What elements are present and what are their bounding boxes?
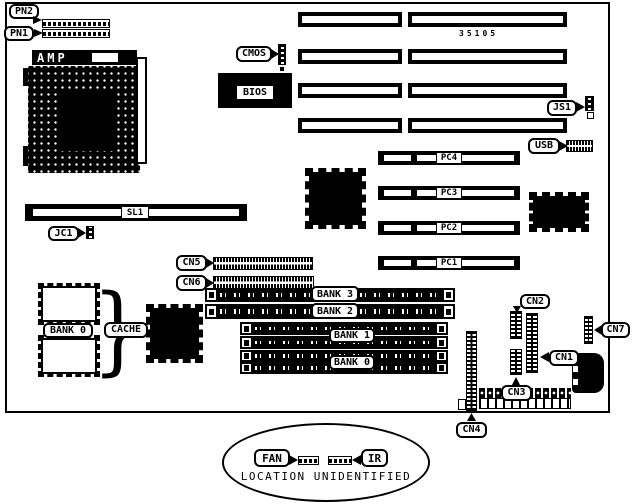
location-unidentified-ellipse: [222, 423, 430, 502]
cn4-header: [466, 331, 477, 411]
simm-latch-icon: [206, 305, 217, 318]
slot-stripe: [462, 225, 514, 231]
bios-chip-label: BIOS: [237, 86, 273, 99]
isa-slot-2-left: [298, 49, 402, 64]
js1-jumper: [585, 96, 594, 111]
board-id-text: 35105: [459, 29, 498, 38]
isa-slot-3-right: [408, 83, 567, 98]
cn4-pad: [458, 399, 466, 410]
pci-slot-pc2: PC2: [378, 221, 520, 235]
cpu-socket-header: AMP: [32, 50, 137, 65]
simm-latch-icon: [436, 337, 447, 348]
slot-stripe: [384, 260, 411, 266]
fan-label: FAN: [254, 449, 290, 467]
ir-header: [328, 456, 352, 465]
slot-stripe: [384, 190, 411, 196]
slot-stripe: [462, 155, 514, 161]
ir-label: IR: [361, 449, 388, 467]
isa-slot-2-right: [408, 49, 567, 64]
slot-stripe: [417, 225, 436, 231]
bank2-label: BANK 2: [311, 303, 359, 319]
pci-slot-pc1-label: PC1: [436, 257, 462, 269]
isa-slot-4-right: [408, 118, 567, 133]
simm-latch-icon: [206, 289, 217, 301]
cn5-header: [213, 257, 313, 270]
slot-stripe: [462, 190, 514, 196]
pn1-label: PN1: [4, 26, 34, 41]
cn1-label: CN1: [549, 350, 579, 366]
cmos-pad: [280, 67, 284, 71]
isa-slot-4-left: [298, 118, 402, 133]
location-unidentified-text: LOCATION UNIDENTIFIED: [234, 470, 418, 483]
jc1-jumper: [86, 226, 94, 239]
bios-chip: BIOS: [218, 73, 292, 108]
cn7-header: [584, 316, 593, 344]
cn7-label: CN7: [601, 322, 630, 338]
simm-latch-icon: [241, 337, 252, 348]
pci-slot-pc1: PC1: [378, 256, 520, 270]
cmos-label: CMOS: [236, 46, 272, 62]
cpu-socket-window: [92, 53, 118, 62]
cn6-label: CN6: [176, 275, 207, 291]
cn5-label: CN5: [176, 255, 207, 271]
cmos-jumper: [278, 44, 286, 65]
cn4-label: CN4: [456, 422, 487, 438]
slot-stripe: [384, 155, 411, 161]
jc1-label: JC1: [48, 226, 79, 241]
slot-stripe: [417, 155, 436, 161]
pn2-header: [42, 19, 110, 28]
cache-sram-chip-1: [41, 286, 97, 322]
simm-latch-icon: [241, 363, 252, 373]
bank3-label: BANK 3: [311, 286, 359, 302]
cpu-socket: [28, 66, 140, 173]
isa-slot-3-left: [298, 83, 402, 98]
isa-slot-1-left: [298, 12, 402, 27]
simm-latch-icon: [443, 289, 454, 301]
pci-slot-pc3-label: PC3: [436, 187, 462, 199]
js1-pad: [587, 112, 594, 119]
simm-latch-icon: [436, 363, 447, 373]
slot-stripe: [417, 190, 436, 196]
simm-latch-icon: [436, 323, 447, 334]
simm-latch-icon: [241, 351, 252, 361]
pci-slot-pc4: PC4: [378, 151, 520, 165]
cn3-header: [510, 349, 522, 375]
js1-label: JS1: [547, 100, 577, 116]
cn2-header: [510, 311, 522, 339]
cn2-label: CN2: [520, 294, 550, 309]
cn4-pointer: [467, 413, 476, 421]
motherboard-diagram: 35105 PN2 PN1 AMP CMOS BIOS JS1 USB PC4: [0, 0, 633, 504]
pci-slot-pc2-label: PC2: [436, 222, 462, 234]
simm-latch-icon: [241, 323, 252, 334]
cn3-label: CN3: [501, 385, 532, 401]
usb-label: USB: [528, 138, 560, 154]
slot-stripe: [462, 260, 514, 266]
usb-header: [566, 140, 593, 152]
cache-controller-chip: [150, 308, 199, 359]
cache-bank0-label: BANK 0: [43, 323, 93, 338]
pn1-header: [42, 29, 110, 38]
cache-label: CACHE: [104, 322, 148, 338]
socket-lever-icon: [136, 57, 147, 164]
cpu-socket-label: AMP: [37, 51, 68, 65]
chipset-chip-2: [533, 196, 585, 228]
fan-header: [298, 456, 319, 465]
bank1-label: BANK 1: [329, 328, 375, 343]
simm-latch-icon: [443, 305, 454, 318]
isa-slot-1-right: [408, 12, 567, 27]
simm-latch-icon: [436, 351, 447, 361]
cn1-header: [526, 313, 538, 373]
slot-stripe: [384, 225, 411, 231]
cache-sram-chip-2: [41, 338, 97, 374]
cpu-socket-core: [57, 93, 115, 151]
chipset-chip-1: [309, 172, 362, 225]
bank0-label: BANK 0: [329, 355, 375, 370]
slot-stripe: [417, 260, 436, 266]
pci-slot-pc4-label: PC4: [436, 152, 462, 164]
pci-slot-pc3: PC3: [378, 186, 520, 200]
sl1-slot-label: SL1: [121, 206, 149, 219]
